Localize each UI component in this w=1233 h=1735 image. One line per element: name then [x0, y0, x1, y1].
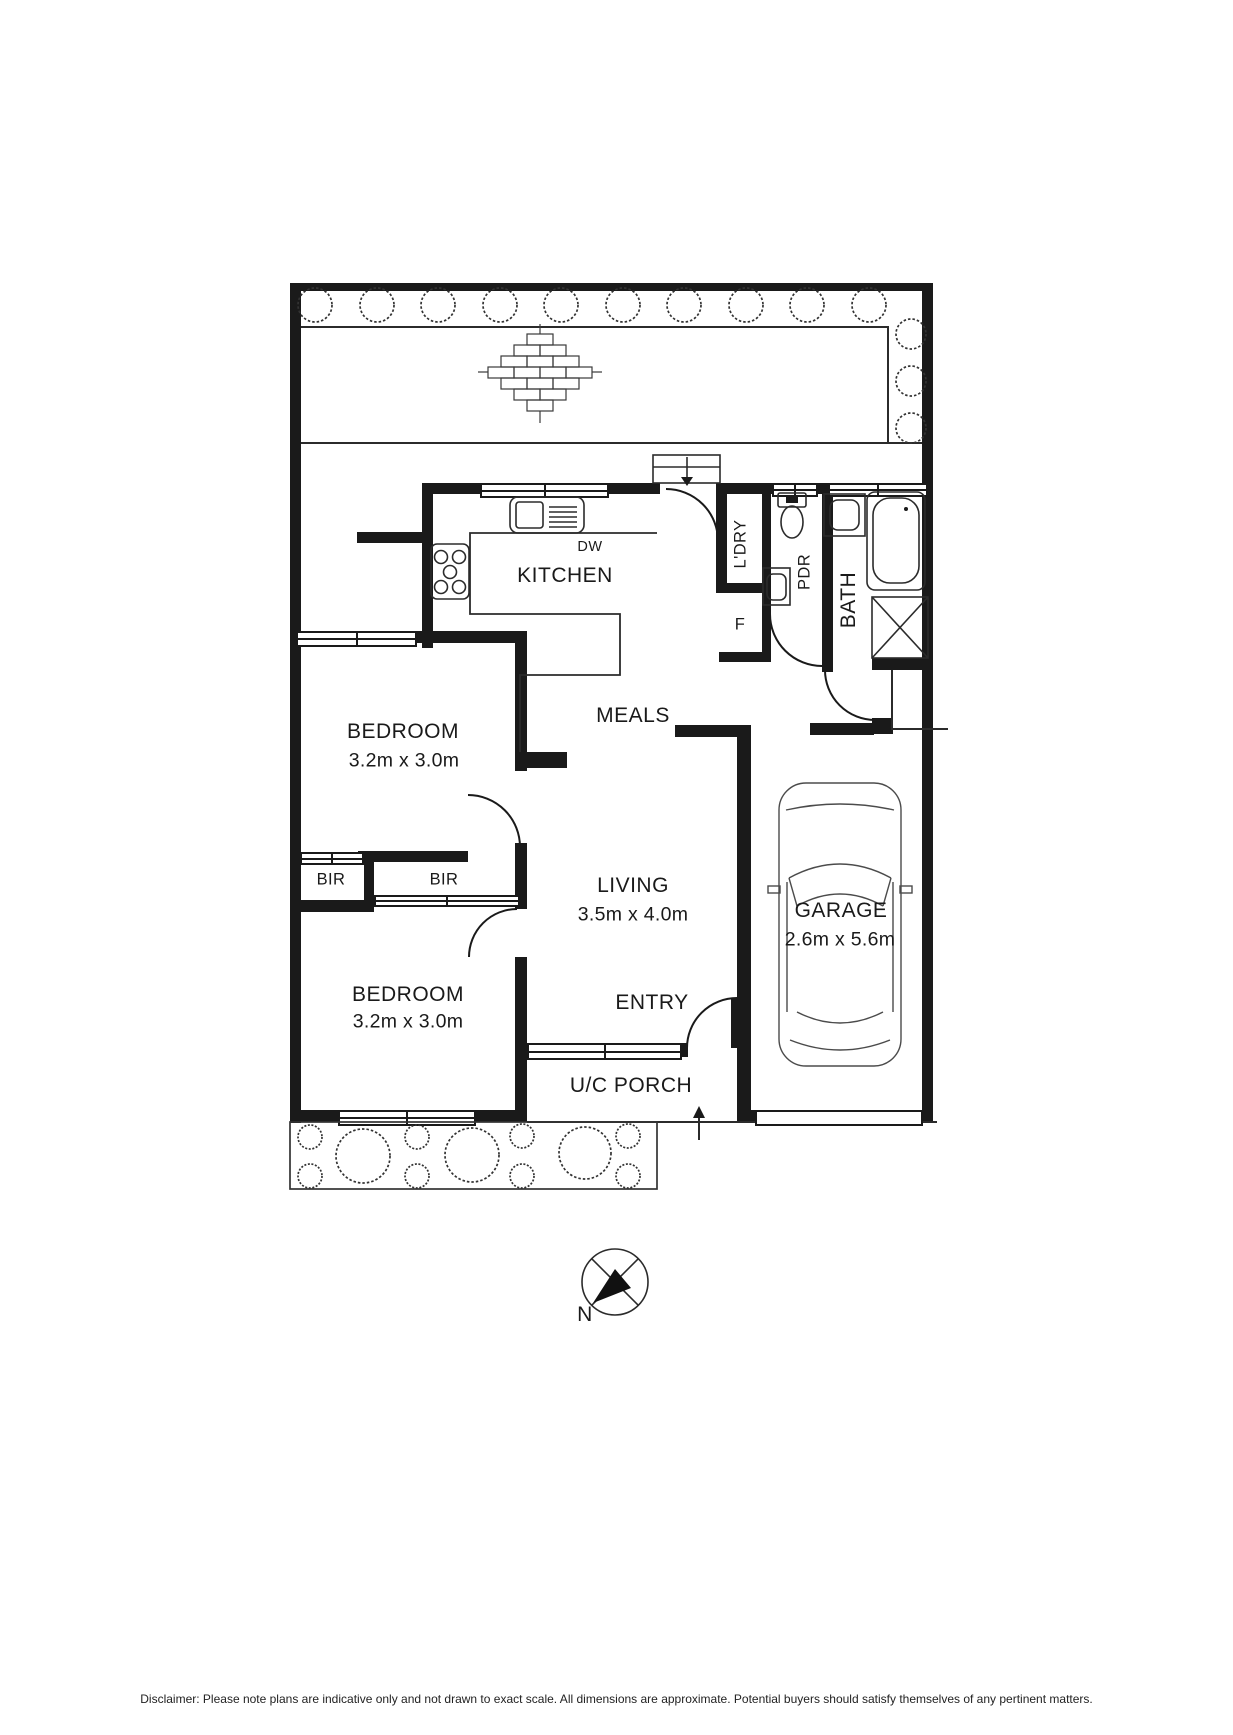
room-label-entry: ENTRY	[615, 991, 688, 1015]
kitchen-sink-icon	[510, 497, 584, 533]
wall-bed1-right	[515, 631, 527, 771]
room-label-meals: MEALS	[596, 704, 670, 728]
car-icon	[768, 783, 912, 1066]
entry-path-arrow-head	[693, 1106, 705, 1118]
plan-artwork	[0, 0, 1233, 1735]
wall-pdr-right	[822, 483, 833, 672]
wall-boundary-top	[290, 283, 933, 291]
bath-window	[828, 483, 928, 497]
wall-laundry-left	[716, 483, 727, 593]
wall-kitchen-left	[422, 483, 433, 648]
room-label-laundry: L'DRY	[732, 520, 751, 569]
wall-bed1-top	[410, 631, 527, 643]
wall-junction-block	[872, 718, 893, 734]
room-dims-bedroom1: 3.2m x 3.0m	[349, 750, 460, 773]
room-label-bedroom2: BEDROOM	[352, 983, 464, 1007]
cooktop-icon	[431, 544, 469, 599]
room-label-bath: BATH	[837, 572, 861, 628]
bed2-window	[338, 1110, 476, 1126]
garage-door-opening	[755, 1110, 923, 1126]
courtyard-door-arrow-icon	[681, 477, 693, 486]
courtyard-line-top	[301, 326, 889, 328]
hall-line-vertical	[891, 670, 893, 730]
wall-meals-stub	[517, 752, 567, 768]
room-label-pdr: PDR	[796, 554, 815, 590]
disclaimer-text: Disclaimer: Please note plans are indica…	[0, 1692, 1233, 1706]
front-garden-bed	[290, 1122, 657, 1189]
fridge-label: F	[735, 616, 745, 635]
wall-laundry-stub	[716, 583, 764, 593]
wall-bath-bottom	[872, 658, 933, 670]
courtyard-door-frame	[653, 455, 720, 483]
room-dims-bedroom2: 3.2m x 3.0m	[353, 1011, 464, 1034]
floor-plan: KITCHEN DW MEALS LIVING 3.5m x 4.0m BEDR…	[0, 0, 1233, 1735]
room-label-garage: GARAGE	[795, 899, 888, 923]
room-label-bir-left: BIR	[317, 871, 346, 890]
shower-icon	[872, 597, 928, 658]
entry-door-arc	[687, 998, 737, 1048]
paving-bricks-icon	[478, 324, 602, 423]
wall-bir-bottom	[290, 900, 374, 912]
north-label: N	[577, 1303, 593, 1327]
bath-door-arc	[825, 670, 875, 720]
wall-nook-right	[762, 483, 771, 662]
room-label-porch: U/C PORCH	[570, 1074, 692, 1098]
pdr-door-arc	[770, 614, 822, 666]
bathtub-icon	[867, 492, 925, 590]
wall-junction-stub	[675, 725, 737, 737]
pdr-window	[772, 483, 818, 497]
wall-boundary-left	[290, 283, 301, 1123]
wall-garage-top	[810, 723, 874, 735]
wall-bir-top	[358, 851, 468, 862]
courtyard-shrubs	[298, 288, 926, 443]
wall-boundary-right	[922, 283, 933, 1123]
room-dims-living: 3.5m x 4.0m	[578, 904, 689, 927]
wall-bed2-bottom-b	[471, 1110, 527, 1122]
courtyard-line-bottom	[301, 442, 922, 444]
wall-kitchen-stub	[357, 532, 427, 543]
bed1-door-arc	[468, 795, 520, 847]
bir2-sliding-doors	[374, 895, 520, 907]
room-label-bir-right: BIR	[430, 871, 459, 890]
wall-garage-left	[737, 725, 751, 1123]
bir1-sliding-doors	[300, 852, 364, 865]
kitchen-window	[480, 483, 609, 498]
courtyard-line-right	[887, 326, 889, 444]
room-label-living: LIVING	[597, 874, 669, 898]
wall-nook-stub	[719, 652, 764, 662]
bed1-window	[296, 631, 417, 647]
entry-window	[527, 1043, 682, 1060]
bed2-door-arc	[469, 909, 517, 957]
wall-bed2-bottom-a	[301, 1110, 339, 1122]
room-label-kitchen: KITCHEN	[517, 564, 613, 588]
room-dims-garage: 2.6m x 5.6m	[785, 929, 896, 952]
dishwasher-label: DW	[577, 539, 602, 555]
wall-top-b	[603, 483, 660, 494]
room-label-bedroom1: BEDROOM	[347, 720, 459, 744]
hall-line-horizontal	[891, 728, 948, 730]
wall-bed2-right	[515, 957, 527, 1122]
courtyard-door-arc	[666, 489, 718, 541]
toilet-icon	[778, 493, 806, 538]
